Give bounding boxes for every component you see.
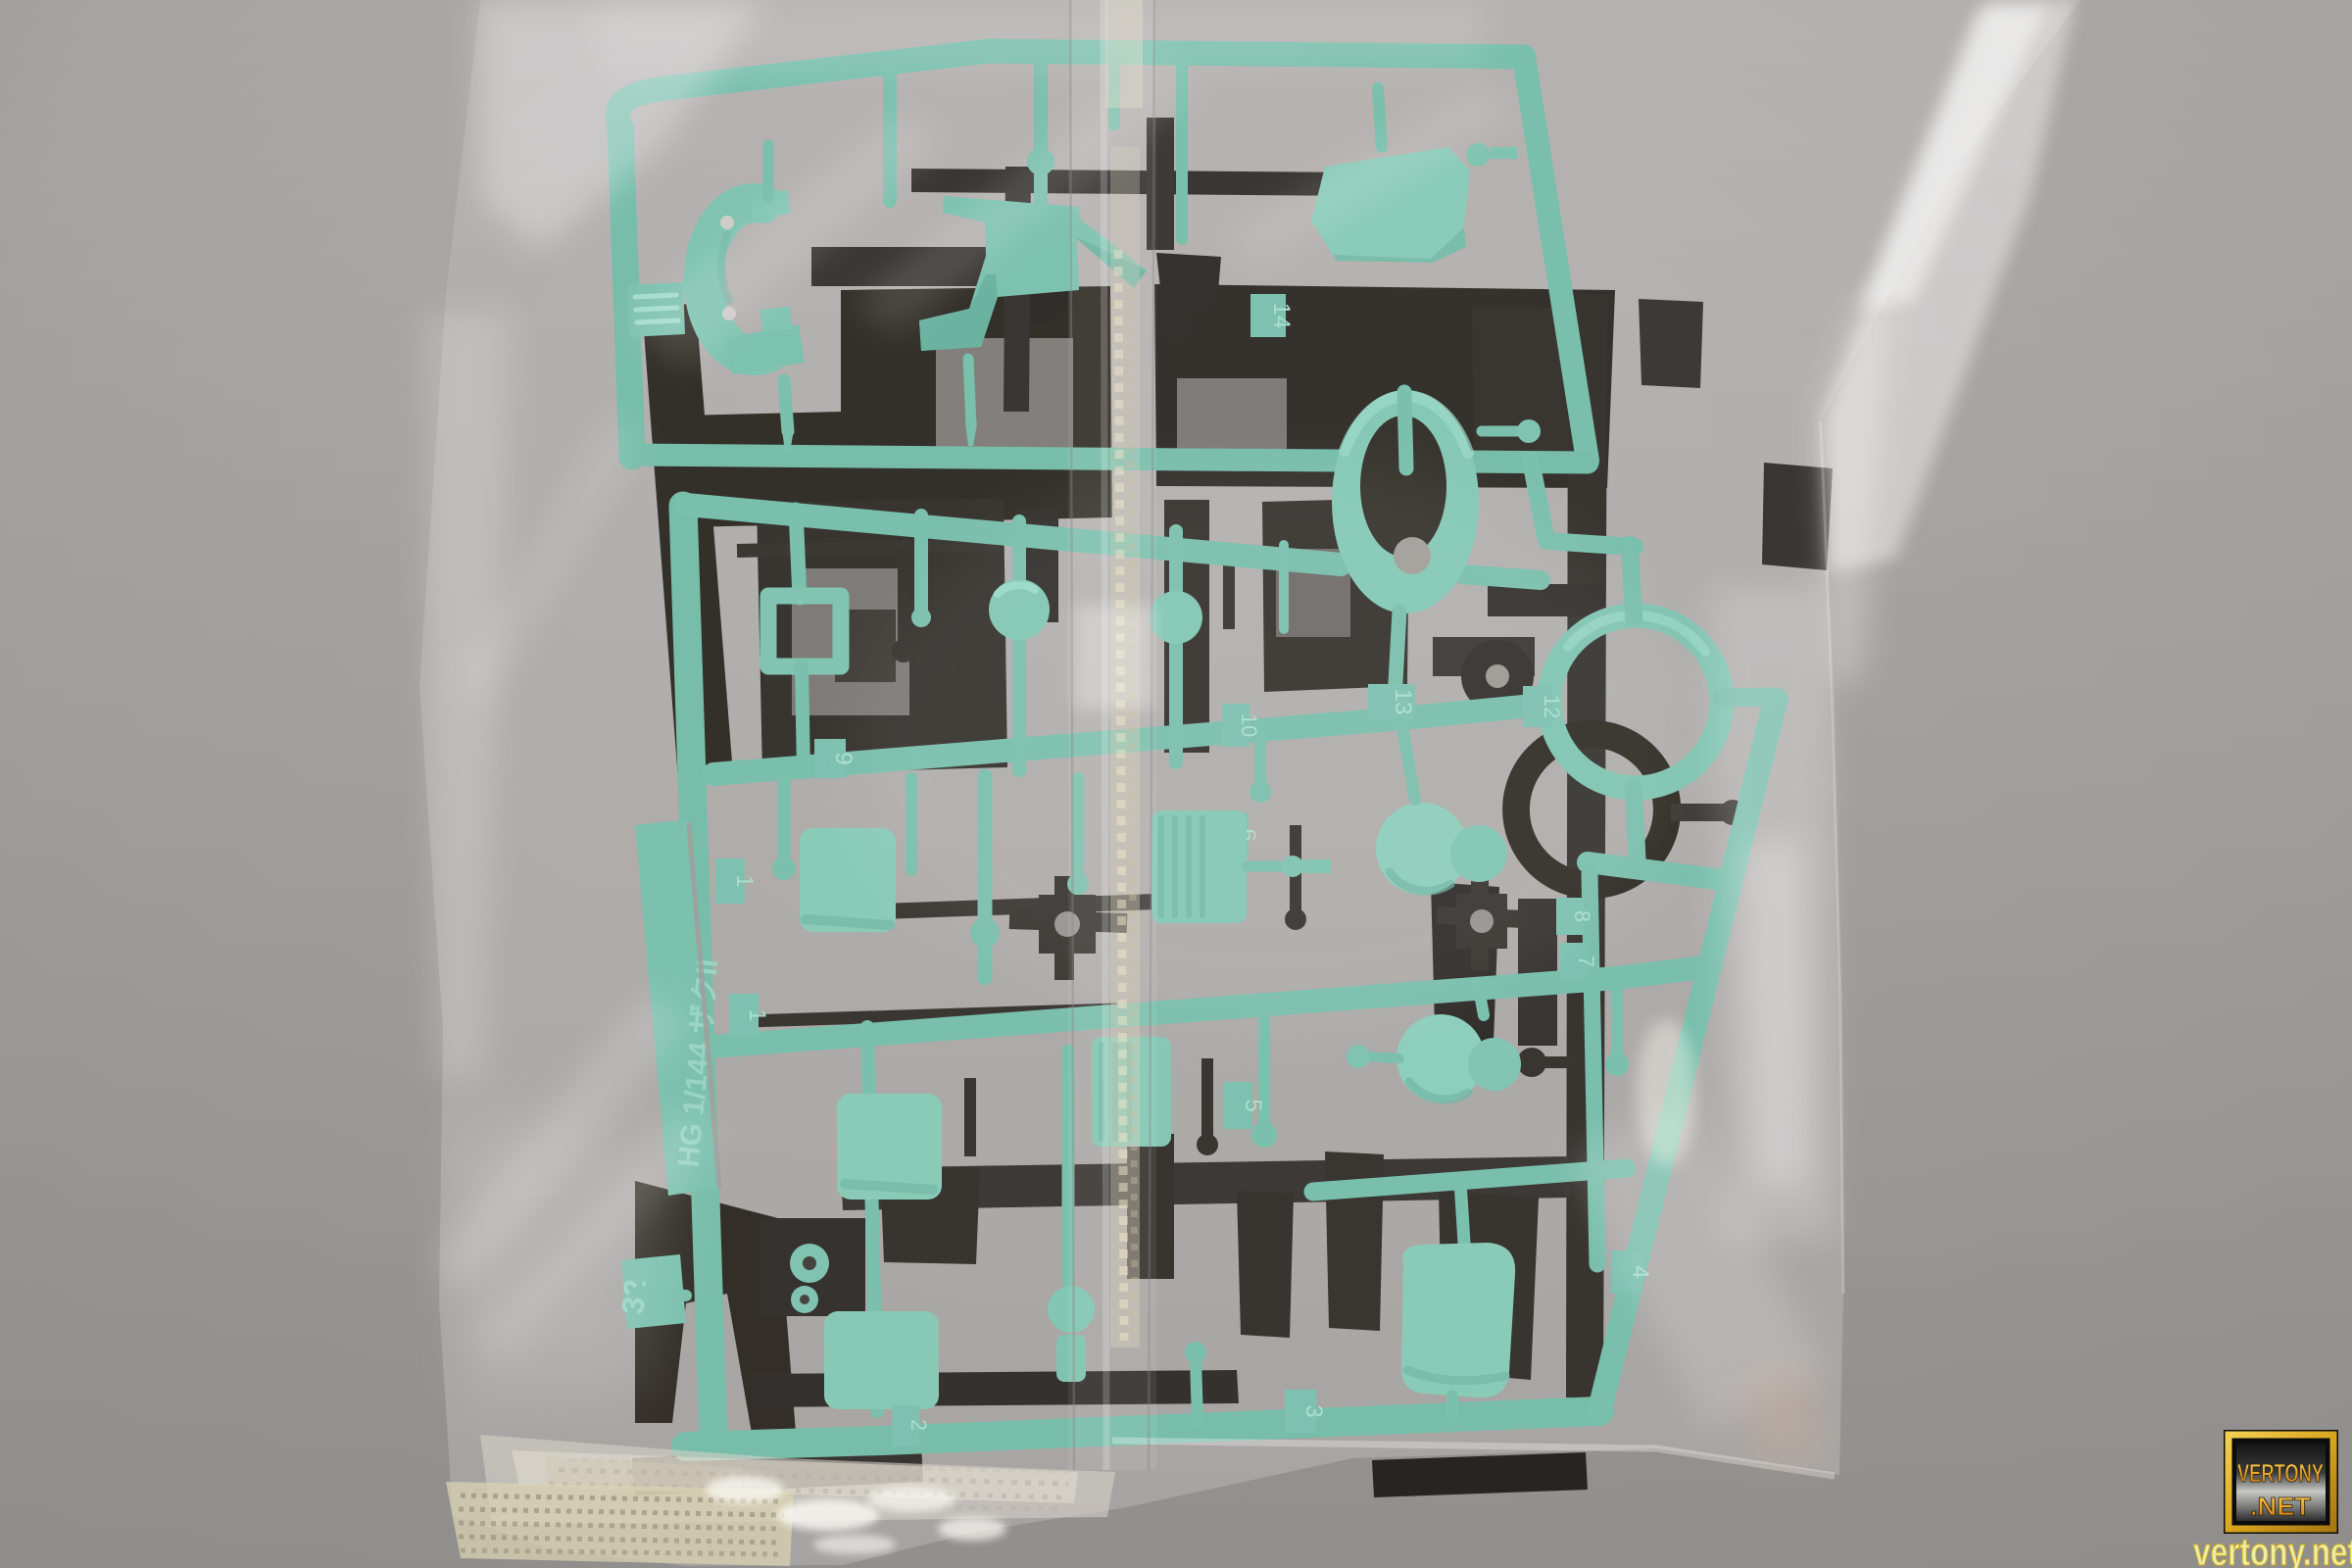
svg-text:vertony.net: vertony.net — [2193, 1531, 2352, 1568]
svg-text:VERTONY: VERTONY — [2237, 1458, 2324, 1488]
svg-text:.NET: .NET — [2250, 1492, 2311, 1521]
